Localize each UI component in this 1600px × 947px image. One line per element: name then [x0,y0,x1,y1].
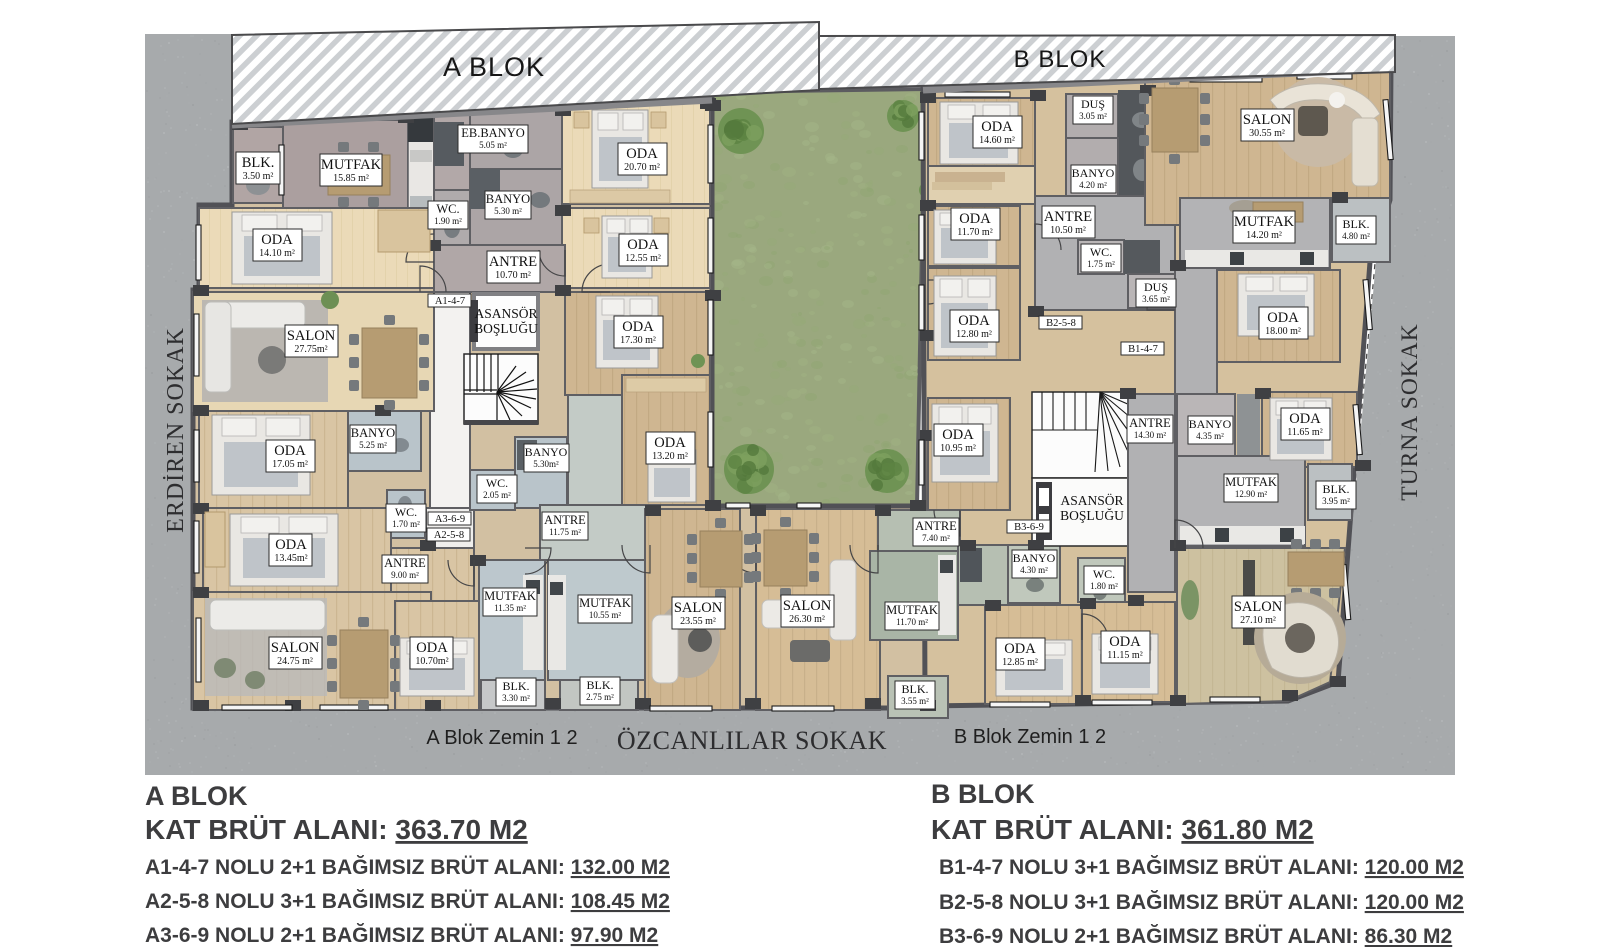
svg-text:27.10 m²: 27.10 m² [1240,615,1276,626]
svg-text:WC.: WC. [436,202,459,216]
svg-text:ASANSÖR: ASANSÖR [1060,493,1123,508]
svg-text:4.80 m²: 4.80 m² [1342,231,1370,241]
svg-text:ODA: ODA [958,313,990,329]
svg-text:3.95 m²: 3.95 m² [1322,496,1350,506]
svg-text:ODA: ODA [274,443,306,459]
svg-text:14.60 m²: 14.60 m² [979,135,1015,146]
svg-text:5.30m²: 5.30m² [533,459,559,469]
svg-text:ODA: ODA [622,319,654,335]
svg-text:ANTRE: ANTRE [544,513,586,527]
svg-text:DUŞ: DUŞ [1081,97,1105,111]
svg-text:12.55 m²: 12.55 m² [625,253,661,264]
svg-text:B BLOK: B BLOK [1014,46,1107,73]
svg-text:A1-4-7: A1-4-7 [435,296,465,307]
svg-text:ODA: ODA [275,537,307,553]
svg-text:B2-5-8 NOLU 3+1 BAĞIMSIZ BRÜT: B2-5-8 NOLU 3+1 BAĞIMSIZ BRÜT ALANI: 120… [939,890,1464,914]
svg-text:BLK.: BLK. [902,682,929,696]
svg-text:MUTFAK: MUTFAK [321,157,382,173]
svg-text:BLK.: BLK. [1323,482,1350,496]
svg-text:B BLOK: B BLOK [931,779,1035,809]
svg-text:B1-4-7: B1-4-7 [1128,344,1158,355]
svg-text:5.05 m²: 5.05 m² [479,140,507,150]
svg-text:A Blok Zemin 1 2: A Blok Zemin 1 2 [426,727,577,749]
svg-text:BANYO: BANYO [525,445,568,459]
svg-text:SALON: SALON [674,600,723,616]
svg-text:26.30 m²: 26.30 m² [789,614,825,625]
svg-text:BOŞLUĞU: BOŞLUĞU [1060,508,1124,523]
svg-text:A BLOK: A BLOK [145,781,248,811]
svg-text:20.70 m²: 20.70 m² [624,162,660,173]
svg-text:11.75 m²: 11.75 m² [549,527,581,537]
svg-text:MUTFAK: MUTFAK [1225,475,1277,489]
svg-text:A1-4-7 NOLU 2+1 BAĞIMSIZ BRÜT: A1-4-7 NOLU 2+1 BAĞIMSIZ BRÜT ALANI: 132… [145,855,670,879]
svg-text:30.55 m²: 30.55 m² [1249,128,1285,139]
svg-text:12.85 m²: 12.85 m² [1002,657,1038,668]
svg-text:24.75 m²: 24.75 m² [277,656,313,667]
svg-text:ODA: ODA [1267,310,1299,326]
svg-text:10.95 m²: 10.95 m² [940,443,976,454]
svg-text:ODA: ODA [981,119,1013,135]
svg-text:A3-6-9 NOLU 2+1 BAĞIMSIZ BRÜT: A3-6-9 NOLU 2+1 BAĞIMSIZ BRÜT ALANI: 97.… [145,923,658,947]
svg-text:KAT BRÜT ALANI: 361.80 M2: KAT BRÜT ALANI: 361.80 M2 [931,814,1314,845]
svg-text:ERDİREN SOKAK: ERDİREN SOKAK [163,327,189,533]
svg-text:BOŞLUĞU: BOŞLUĞU [474,321,538,336]
svg-text:10.55 m²: 10.55 m² [589,610,622,620]
svg-text:1.90 m²: 1.90 m² [434,216,462,226]
svg-text:ODA: ODA [1004,641,1036,657]
svg-text:5.30 m²: 5.30 m² [494,206,522,216]
svg-text:12.80 m²: 12.80 m² [956,329,992,340]
svg-text:11.35 m²: 11.35 m² [494,603,526,613]
svg-text:1.80 m²: 1.80 m² [1090,581,1118,591]
svg-text:11.70 m²: 11.70 m² [896,617,928,627]
svg-text:ODA: ODA [626,146,658,162]
svg-text:WC.: WC. [1093,567,1115,581]
svg-text:MUTFAK: MUTFAK [886,603,938,617]
svg-text:ODA: ODA [942,427,974,443]
svg-text:14.30 m²: 14.30 m² [1134,430,1167,440]
svg-text:KAT BRÜT ALANI: 363.70 M2: KAT BRÜT ALANI: 363.70 M2 [145,814,528,845]
svg-text:1.75 m²: 1.75 m² [1087,259,1115,269]
svg-text:BANYO: BANYO [486,192,530,206]
svg-text:4.35 m²: 4.35 m² [1196,431,1224,441]
svg-text:4.30 m²: 4.30 m² [1020,565,1048,575]
svg-text:ODA: ODA [654,435,686,451]
svg-text:17.05 m²: 17.05 m² [272,459,308,470]
svg-text:MUTFAK: MUTFAK [484,589,536,603]
svg-text:18.00 m²: 18.00 m² [1265,326,1301,337]
svg-text:SALON: SALON [1243,112,1292,128]
svg-text:ODA: ODA [261,232,293,248]
svg-text:ANTRE: ANTRE [1044,209,1092,225]
svg-text:A3-6-9: A3-6-9 [435,514,465,525]
svg-text:5.25 m²: 5.25 m² [359,440,387,450]
svg-text:27.75m²: 27.75m² [294,344,327,355]
svg-text:ANTRE: ANTRE [915,519,957,533]
svg-text:3.30 m²: 3.30 m² [502,693,530,703]
svg-text:12.90 m²: 12.90 m² [1235,489,1268,499]
svg-text:BLK.: BLK. [503,679,530,693]
svg-text:17.30 m²: 17.30 m² [620,335,656,346]
svg-text:ASANSÖR: ASANSÖR [474,306,537,321]
svg-text:ODA: ODA [627,237,659,253]
svg-text:11.15 m²: 11.15 m² [1107,650,1142,661]
svg-text:14.10 m²: 14.10 m² [259,248,295,259]
svg-text:BLK.: BLK. [587,678,614,692]
svg-text:2.75 m²: 2.75 m² [586,692,614,702]
svg-text:1.70 m²: 1.70 m² [392,519,420,529]
svg-text:EB.BANYO: EB.BANYO [461,126,525,140]
svg-text:B2-5-8: B2-5-8 [1046,318,1076,329]
svg-text:SALON: SALON [271,640,320,656]
svg-text:11.70 m²: 11.70 m² [957,227,992,238]
svg-text:B3-6-9 NOLU 2+1 BAĞIMSIZ BRÜT: B3-6-9 NOLU 2+1 BAĞIMSIZ BRÜT ALANI: 86.… [939,924,1452,947]
svg-text:BLK.: BLK. [1343,217,1370,231]
svg-text:11.65 m²: 11.65 m² [1287,427,1322,438]
svg-text:A2-5-8: A2-5-8 [434,530,464,541]
svg-text:10.70m²: 10.70m² [415,656,448,667]
svg-text:A BLOK: A BLOK [443,52,545,82]
svg-text:WC.: WC. [395,505,417,519]
svg-text:3.55 m²: 3.55 m² [901,696,929,706]
svg-text:13.20 m²: 13.20 m² [652,451,688,462]
svg-text:23.55 m²: 23.55 m² [680,616,716,627]
svg-text:BANYO: BANYO [1072,166,1115,180]
svg-text:BANYO: BANYO [1189,417,1232,431]
svg-text:ÖZCANLILAR SOKAK: ÖZCANLILAR SOKAK [617,726,887,755]
svg-text:3.65 m²: 3.65 m² [1142,294,1170,304]
svg-text:ANTRE: ANTRE [489,254,537,270]
svg-text:7.40 m²: 7.40 m² [922,533,950,543]
svg-text:14.20 m²: 14.20 m² [1246,230,1282,241]
svg-text:ODA: ODA [959,211,991,227]
svg-text:15.85 m²: 15.85 m² [333,173,369,184]
svg-text:ODA: ODA [1109,634,1141,650]
svg-text:10.50 m²: 10.50 m² [1050,225,1086,236]
svg-text:BANYO: BANYO [351,426,395,440]
svg-text:9.00 m²: 9.00 m² [391,570,419,580]
svg-text:13.45m²: 13.45m² [274,553,307,564]
svg-text:MUTFAK: MUTFAK [1234,214,1295,230]
svg-text:DUŞ: DUŞ [1144,280,1168,294]
svg-text:WC.: WC. [1090,245,1112,259]
svg-text:BANYO: BANYO [1013,551,1056,565]
svg-text:ANTRE: ANTRE [1129,416,1171,430]
svg-text:2.05 m²: 2.05 m² [483,490,511,500]
svg-text:4.20 m²: 4.20 m² [1079,180,1107,190]
svg-text:WC.: WC. [486,476,508,490]
svg-text:ODA: ODA [416,640,448,656]
svg-text:SALON: SALON [783,598,832,614]
svg-text:ODA: ODA [1289,411,1321,427]
svg-text:SALON: SALON [1234,599,1283,615]
svg-text:B1-4-7 NOLU 3+1 BAĞIMSIZ BRÜT: B1-4-7 NOLU 3+1 BAĞIMSIZ BRÜT ALANI: 120… [939,855,1464,879]
svg-text:B3-6-9: B3-6-9 [1014,522,1044,533]
svg-text:3.50 m²: 3.50 m² [243,171,274,182]
svg-text:3.05 m²: 3.05 m² [1079,111,1107,121]
svg-text:ANTRE: ANTRE [384,556,426,570]
svg-text:10.70 m²: 10.70 m² [495,270,531,281]
svg-text:A2-5-8 NOLU 3+1 BAĞIMSIZ BRÜT: A2-5-8 NOLU 3+1 BAĞIMSIZ BRÜT ALANI: 108… [145,889,670,913]
svg-text:SALON: SALON [287,328,336,344]
svg-text:MUTFAK: MUTFAK [579,596,631,610]
svg-text:B Blok Zemin 1 2: B Blok Zemin 1 2 [954,726,1106,748]
svg-text:TURNA SOKAK: TURNA SOKAK [1397,323,1423,500]
svg-text:BLK.: BLK. [242,155,275,171]
